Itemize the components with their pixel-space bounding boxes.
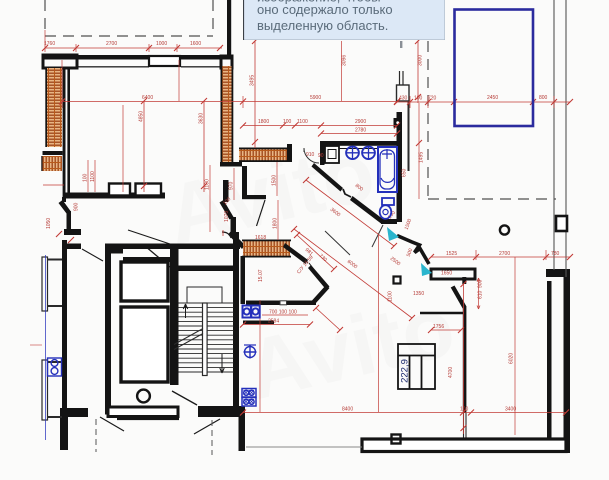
svg-text:3096: 3096 — [342, 55, 348, 66]
svg-text:2450: 2450 — [487, 95, 498, 101]
svg-text:3400: 3400 — [505, 407, 516, 413]
svg-text:1760: 1760 — [44, 41, 55, 47]
svg-text:430: 430 — [399, 96, 408, 102]
svg-text:780: 780 — [551, 251, 560, 257]
svg-text:100: 100 — [283, 119, 292, 125]
svg-text:3495: 3495 — [250, 75, 256, 86]
svg-text:2584: 2584 — [268, 319, 279, 325]
svg-text:900: 900 — [478, 279, 484, 288]
svg-text:900: 900 — [74, 202, 80, 211]
svg-text:4850: 4850 — [139, 111, 145, 122]
svg-text:1495: 1495 — [419, 152, 425, 163]
svg-text:6400: 6400 — [142, 95, 153, 101]
svg-text:4700: 4700 — [448, 367, 454, 378]
svg-text:2700: 2700 — [106, 41, 117, 47]
svg-text:800: 800 — [539, 95, 548, 101]
svg-text:222,9: 222,9 — [400, 359, 411, 383]
svg-text:1600: 1600 — [190, 41, 201, 47]
svg-text:1070: 1070 — [224, 211, 230, 222]
svg-text:2900: 2900 — [355, 119, 366, 125]
svg-text:1100: 1100 — [90, 171, 96, 182]
svg-text:610: 610 — [478, 290, 484, 299]
svg-text:5900: 5900 — [310, 95, 321, 101]
svg-text:1100: 1100 — [388, 291, 394, 302]
svg-text:1050: 1050 — [46, 218, 52, 229]
svg-text:1525: 1525 — [446, 251, 457, 257]
svg-text:1000: 1000 — [156, 41, 167, 47]
svg-text:1618: 1618 — [255, 235, 266, 241]
svg-text:90: 90 — [318, 153, 324, 159]
svg-text:910: 910 — [306, 152, 315, 158]
svg-text:1800: 1800 — [258, 119, 269, 125]
svg-text:970: 970 — [229, 181, 235, 190]
svg-text:3630: 3630 — [199, 113, 205, 124]
svg-text:1800: 1800 — [273, 218, 279, 229]
svg-text:1650: 1650 — [441, 271, 452, 277]
svg-text:100: 100 — [414, 96, 423, 102]
svg-text:1500: 1500 — [272, 175, 278, 186]
svg-text:оно содержало только: оно содержало только — [257, 2, 393, 17]
svg-text:2780: 2780 — [355, 128, 366, 134]
svg-text:6020: 6020 — [509, 353, 515, 364]
svg-text:15.07: 15.07 — [258, 269, 264, 282]
svg-text:100: 100 — [83, 173, 89, 182]
svg-text:2700: 2700 — [499, 251, 510, 257]
svg-text:8400: 8400 — [342, 407, 353, 413]
svg-text:700 100 100: 700 100 100 — [269, 310, 297, 316]
svg-text:1100: 1100 — [297, 119, 308, 125]
svg-text:3000: 3000 — [418, 55, 424, 66]
svg-text:100: 100 — [460, 407, 469, 413]
svg-text:1350: 1350 — [413, 291, 424, 297]
svg-text:1100: 1100 — [205, 179, 211, 190]
svg-text:720: 720 — [428, 96, 437, 102]
svg-text:выделенную область.: выделенную область. — [257, 18, 388, 33]
svg-text:650: 650 — [402, 168, 408, 177]
svg-text:1756: 1756 — [433, 324, 444, 330]
